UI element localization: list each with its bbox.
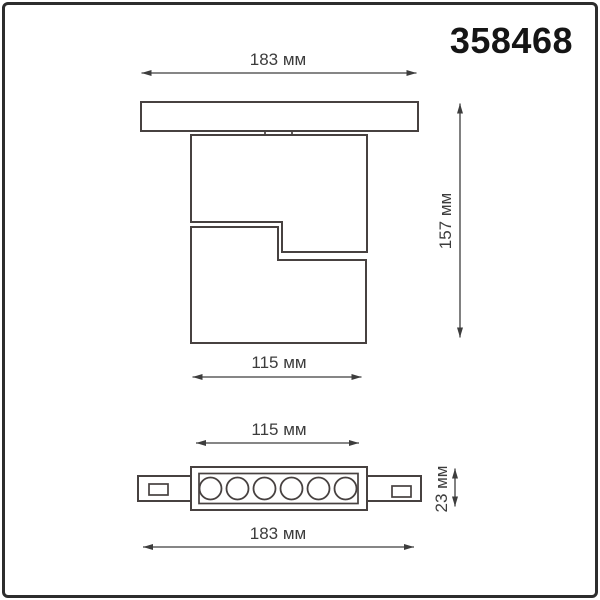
led-circle: [281, 478, 303, 500]
technical-drawing: [0, 0, 600, 600]
label-overall-width-bottom: 183 мм: [250, 524, 306, 544]
top-view: [141, 73, 460, 377]
label-fixture-height: 23 мм: [432, 465, 452, 512]
label-body-width: 115 мм: [251, 353, 306, 373]
mounting-plate: [141, 102, 418, 131]
page: 358468: [0, 0, 600, 600]
label-body-width-bottom: 115 мм: [251, 420, 306, 440]
led-circle: [308, 478, 330, 500]
label-overall-height: 157 мм: [436, 193, 456, 249]
led-circle: [200, 478, 222, 500]
left-adapter-slot: [149, 484, 168, 495]
right-adapter-slot: [392, 486, 411, 497]
led-circle: [227, 478, 249, 500]
led-circle: [254, 478, 276, 500]
led-circle: [335, 478, 357, 500]
label-overall-width-top: 183 мм: [250, 50, 306, 70]
